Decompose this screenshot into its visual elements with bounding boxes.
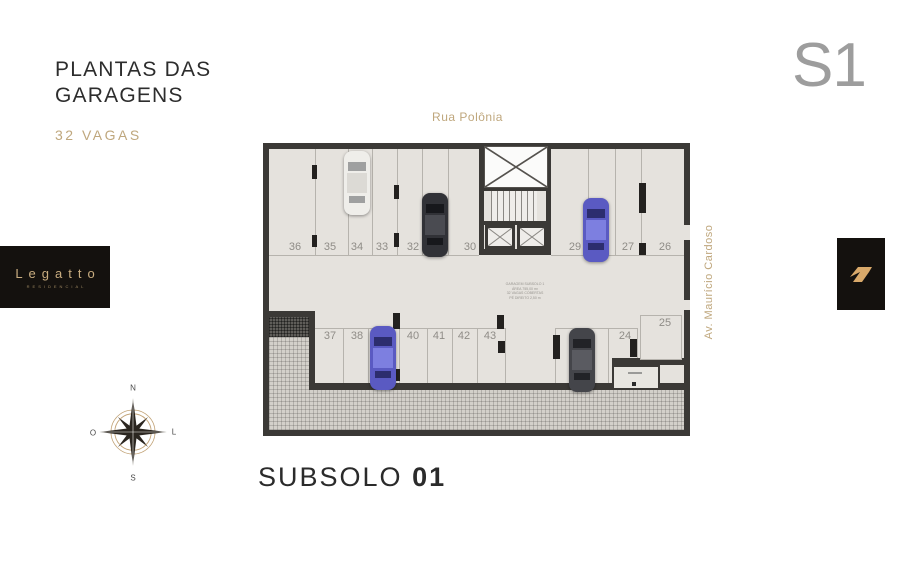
column: [498, 341, 505, 353]
stall-line: [372, 149, 373, 255]
wall: [263, 430, 690, 436]
compass-south-label: S: [130, 474, 135, 483]
wall: [263, 143, 690, 149]
stall-number: 38: [351, 330, 363, 342]
wall: [684, 240, 690, 300]
slide: PLANTAS DAS GARAGENS 32 VAGAS S1 Legatto…: [0, 0, 900, 561]
car-top-view: [370, 326, 396, 390]
level-badge: S1: [792, 30, 866, 101]
wall: [684, 310, 690, 436]
column: [393, 313, 400, 329]
column: [639, 243, 646, 255]
stall-line: [505, 328, 506, 383]
car-top-view: [583, 198, 609, 262]
floor-caption-bold: 01: [412, 462, 446, 492]
stall-number: 29: [569, 241, 581, 253]
stall-line: [368, 328, 369, 383]
plan-note-line: GARAGEM SUBSOLO 1: [500, 282, 550, 287]
page-title-line1: PLANTAS DAS: [55, 57, 211, 83]
column: [312, 165, 317, 179]
stall-line: [343, 328, 344, 383]
stall-number: 41: [433, 330, 445, 342]
utility-room: [612, 365, 660, 390]
column: [312, 235, 317, 247]
stall-number: 26: [659, 241, 671, 253]
stall-line: [452, 328, 453, 383]
stall-number: 25: [659, 317, 671, 329]
stall-number: 27: [622, 241, 634, 253]
plan-note-line: PÉ DIREITO 2,50 m: [500, 296, 550, 301]
pit-room: [269, 317, 309, 337]
page-title: PLANTAS DAS GARAGENS: [55, 57, 211, 109]
column: [553, 335, 560, 359]
stall-line: [551, 255, 684, 256]
legatto-wordmark: Legatto: [9, 266, 100, 281]
compass-north-label: N: [130, 384, 136, 393]
compass-rose: N S O L: [85, 380, 181, 484]
stall-line: [608, 328, 609, 383]
elevator: [517, 225, 547, 249]
street-label-right: Av. Maurício Cardoso: [703, 225, 715, 340]
stall-line: [448, 149, 449, 255]
plan-note: GARAGEM SUBSOLO 1 ÁREA 755,00 m² 32 VAGA…: [500, 282, 550, 300]
stall-line: [555, 328, 637, 329]
stall-number: 36: [289, 241, 301, 253]
developer-logo: [837, 238, 885, 310]
room-label-mark: [628, 372, 642, 374]
wall: [309, 311, 315, 390]
legatto-subtitle: RESIDENCIAL: [24, 284, 87, 289]
stall-line: [269, 255, 479, 256]
car-top-view: [569, 328, 595, 392]
floor-plan: GARAGEM SUBSOLO 1 ÁREA 755,00 m² 32 VAGA…: [263, 143, 690, 436]
stall-number: 32: [407, 241, 419, 253]
ramp-void: [484, 146, 548, 188]
core-wall: [479, 249, 551, 255]
stall-line: [615, 149, 616, 255]
stall-line: [477, 328, 478, 383]
compass-east-label: L: [172, 428, 176, 437]
stall-number: 42: [458, 330, 470, 342]
floor-caption: SUBSOLO 01: [258, 462, 446, 493]
stall-line: [427, 328, 428, 383]
stall-number: 34: [351, 241, 363, 253]
stall-number: 37: [324, 330, 336, 342]
unexcavated-strip: [309, 390, 684, 430]
stall-number: 33: [376, 241, 388, 253]
car-top-view: [344, 151, 370, 215]
elevator: [485, 225, 515, 249]
stall-number: 30: [464, 241, 476, 253]
stall-number: 40: [407, 330, 419, 342]
stall-count-label: 32 VAGAS: [55, 127, 142, 143]
street-label-top: Rua Polônia: [410, 110, 525, 124]
car-top-view: [422, 193, 448, 257]
stall-number: 24: [619, 330, 631, 342]
unexcavated-area: [269, 337, 309, 430]
room-fixture: [632, 382, 636, 386]
stall-number: 35: [324, 241, 336, 253]
column: [497, 315, 504, 329]
developer-monogram-icon: [848, 263, 874, 285]
compass-west-label: O: [90, 429, 96, 438]
stairs: [491, 191, 537, 221]
compass-star-icon: [95, 394, 171, 470]
page-title-line2: GARAGENS: [55, 83, 211, 109]
legatto-logo: Legatto RESIDENCIAL: [0, 246, 110, 308]
column: [639, 183, 646, 213]
column: [394, 233, 399, 247]
column: [394, 185, 399, 199]
floor-caption-light: SUBSOLO: [258, 462, 403, 492]
wall: [684, 143, 690, 225]
stall-number: 43: [484, 330, 496, 342]
